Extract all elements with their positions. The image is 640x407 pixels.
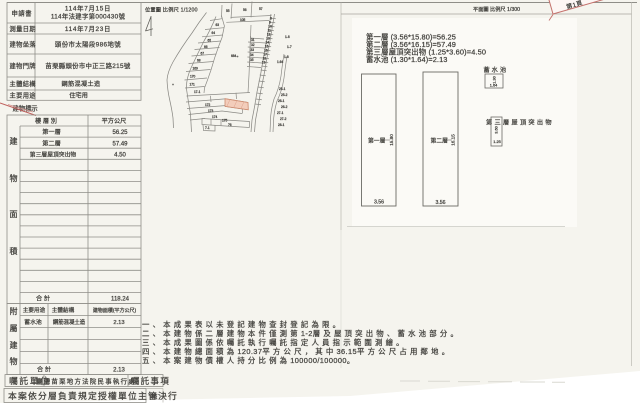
svg-text:2.13: 2.13 xyxy=(113,368,125,374)
svg-text:第三層屋頂突出物: 第三層屋頂突出物 xyxy=(486,119,554,127)
svg-text:25-1: 25-1 xyxy=(279,87,286,91)
svg-text:建物門牌: 建物門牌 xyxy=(10,61,37,70)
svg-text:175: 175 xyxy=(222,119,228,123)
svg-text:平方公尺: 平方公尺 xyxy=(102,117,127,125)
svg-text:1.25: 1.25 xyxy=(493,140,500,144)
svg-text:171: 171 xyxy=(190,83,196,87)
svg-text:105: 105 xyxy=(240,18,246,22)
svg-text:樓 層 別: 樓 層 別 xyxy=(35,117,57,125)
svg-text:114年法建字第000430號: 114年法建字第000430號 xyxy=(51,12,126,21)
svg-text:174: 174 xyxy=(212,115,218,119)
svg-text:118.24: 118.24 xyxy=(111,297,130,303)
svg-text:34: 34 xyxy=(250,53,254,57)
svg-text:3.60: 3.60 xyxy=(495,126,499,133)
svg-text:1.64: 1.64 xyxy=(277,60,283,64)
svg-text:26-1: 26-1 xyxy=(278,99,285,103)
svg-text:15.80: 15.80 xyxy=(389,134,394,146)
svg-text:囑託事項: 囑託事項 xyxy=(131,376,170,386)
svg-text:26-2: 26-2 xyxy=(281,105,288,109)
svg-text:二、本建物係二層建物本件僅測第1-2層及屋頂突出物、蓄水池部: 二、本建物係二層建物本件僅測第1-2層及屋頂突出物、蓄水池部分。 xyxy=(142,329,461,338)
svg-text:31: 31 xyxy=(251,38,255,42)
svg-text:測量日期: 測量日期 xyxy=(10,24,36,33)
svg-text:合 計: 合 計 xyxy=(36,295,50,303)
svg-text:位置圖 比例尺 1/1200: 位置圖 比例尺 1/1200 xyxy=(145,6,198,14)
svg-text:建物面積(平方公尺): 建物面積(平方公尺) xyxy=(93,307,137,314)
svg-text:第三層屋頂突出物: 第三層屋頂突出物 xyxy=(30,150,77,158)
svg-text:684: 684 xyxy=(231,54,237,58)
svg-text:第二層: 第二層 xyxy=(42,139,61,147)
svg-text:4.50: 4.50 xyxy=(114,152,126,158)
svg-text:3.56: 3.56 xyxy=(435,200,445,206)
svg-text:114年7月15日: 114年7月15日 xyxy=(65,4,111,13)
svg-text:7-1: 7-1 xyxy=(205,126,210,130)
svg-text:鋼筋混凝土造: 鋼筋混凝土造 xyxy=(62,80,101,88)
svg-text:第一層: 第一層 xyxy=(42,128,61,136)
svg-text:蓄水池: 蓄水池 xyxy=(484,66,509,74)
svg-text:27-2: 27-2 xyxy=(280,117,287,121)
svg-text:建物坐落: 建物坐落 xyxy=(10,40,37,49)
svg-text:170: 170 xyxy=(190,75,196,79)
svg-text:2.13: 2.13 xyxy=(113,320,124,326)
svg-text:65: 65 xyxy=(208,39,212,43)
svg-text:建物標示: 建物標示 xyxy=(13,104,38,113)
svg-text:16.15: 16.15 xyxy=(451,134,456,146)
svg-text:76: 76 xyxy=(228,123,232,127)
svg-text:3.56: 3.56 xyxy=(374,200,384,206)
svg-text:32: 32 xyxy=(251,43,255,47)
svg-text:五、本案建物債權人持分比例為100000/100000。: 五、本案建物債權人持分比例為100000/100000。 xyxy=(142,356,357,365)
svg-text:114年7月23日: 114年7月23日 xyxy=(65,24,111,33)
svg-text:臺灣苗栗地方法院民事執行處: 臺灣苗栗地方法院民事執行處 xyxy=(36,376,136,385)
svg-text:57: 57 xyxy=(259,7,263,11)
svg-text:屬: 屬 xyxy=(10,324,18,333)
svg-text:三、本成果圖係依囑託執行囑託指定人員指示範圍測繪。: 三、本成果圖係依囑託執行囑託指定人員指示範圍測繪。 xyxy=(142,338,407,347)
svg-text:面: 面 xyxy=(10,210,18,219)
svg-text:主要用途: 主要用途 xyxy=(23,306,46,314)
svg-text:建: 建 xyxy=(10,340,18,350)
svg-text:積: 積 xyxy=(10,246,18,256)
svg-text:173: 173 xyxy=(208,109,214,113)
svg-text:1.64: 1.64 xyxy=(490,84,497,88)
svg-text:55: 55 xyxy=(226,9,230,13)
svg-text:核: 核 xyxy=(151,392,158,401)
svg-text:平面圖 比例尺 1/300: 平面圖 比例尺 1/300 xyxy=(473,5,520,13)
svg-text:19: 19 xyxy=(262,61,266,65)
svg-text:苗栗縣頭份市中正三路215號: 苗栗縣頭份市中正三路215號 xyxy=(45,61,130,70)
svg-text:申請書: 申請書 xyxy=(12,9,33,18)
svg-text:172: 172 xyxy=(205,103,211,107)
svg-text:住宅用: 住宅用 xyxy=(69,92,88,100)
svg-text:56: 56 xyxy=(243,8,247,12)
svg-text:56.25: 56.25 xyxy=(112,130,128,136)
svg-text:建: 建 xyxy=(10,136,18,146)
svg-text:物: 物 xyxy=(10,173,18,183)
svg-text:蓄水池 (1.30*1.64)=2.13: 蓄水池 (1.30*1.64)=2.13 xyxy=(366,55,448,64)
svg-text:1-7: 1-7 xyxy=(287,45,292,49)
svg-text:1-6: 1-6 xyxy=(285,35,290,39)
svg-text:四、本建物總面積為120.37平方公尺，其中36.15平方公: 四、本建物總面積為120.37平方公尺，其中36.15平方公尺占用鄰地。 xyxy=(142,347,452,356)
svg-text:1-8: 1-8 xyxy=(284,55,289,59)
svg-text:68: 68 xyxy=(197,59,201,63)
svg-text:合 計: 合 計 xyxy=(37,366,51,374)
svg-text:主體結構: 主體結構 xyxy=(10,79,37,88)
svg-text:57.49: 57.49 xyxy=(112,141,128,147)
svg-text:鋼筋混凝土造: 鋼筋混凝土造 xyxy=(53,318,86,326)
svg-text:25-2: 25-2 xyxy=(281,93,288,97)
svg-text:33: 33 xyxy=(251,48,255,52)
svg-text:64: 64 xyxy=(212,31,216,35)
svg-text:蓄水池: 蓄水池 xyxy=(24,318,42,326)
svg-text:主體結構: 主體結構 xyxy=(52,306,75,314)
svg-text:一、本成果表以未登記建物查封登記為限。: 一、本成果表以未登記建物查封登記為限。 xyxy=(142,320,343,329)
svg-text:169: 169 xyxy=(193,67,199,71)
svg-text:28-1: 28-1 xyxy=(278,123,285,127)
svg-text:主要用途: 主要用途 xyxy=(10,90,37,99)
svg-text:66: 66 xyxy=(204,45,208,49)
svg-text:27-1: 27-1 xyxy=(277,111,284,115)
svg-text:17-1: 17-1 xyxy=(194,90,201,94)
svg-text:第一層: 第一層 xyxy=(368,137,386,145)
svg-text:附: 附 xyxy=(10,306,18,316)
svg-text:35: 35 xyxy=(250,58,254,62)
svg-text:頭份市太陽段986地號: 頭份市太陽段986地號 xyxy=(55,40,121,49)
svg-text:物: 物 xyxy=(10,356,18,366)
svg-text:63: 63 xyxy=(216,23,220,27)
svg-text:第二層: 第二層 xyxy=(431,137,449,145)
svg-text:67: 67 xyxy=(201,52,205,56)
